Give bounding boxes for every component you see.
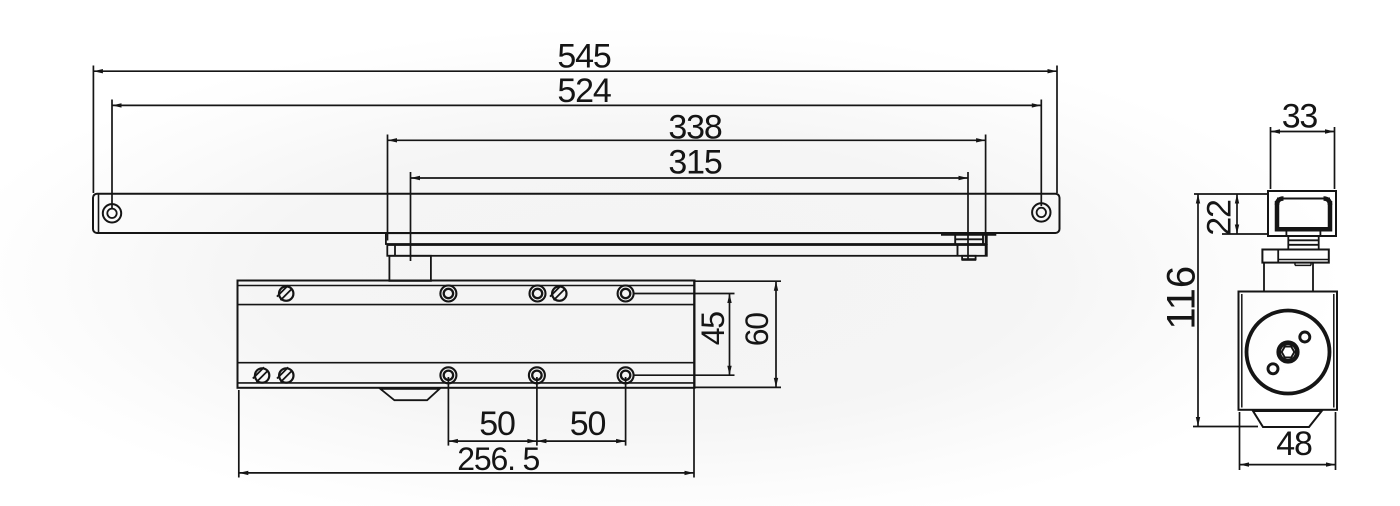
svg-text:60: 60 bbox=[739, 313, 775, 347]
svg-text:50: 50 bbox=[570, 405, 606, 443]
svg-text:256. 5: 256. 5 bbox=[457, 441, 539, 477]
svg-text:116: 116 bbox=[1160, 266, 1204, 330]
svg-text:524: 524 bbox=[557, 72, 610, 110]
svg-text:338: 338 bbox=[668, 108, 721, 146]
svg-text:45: 45 bbox=[695, 312, 731, 346]
svg-text:33: 33 bbox=[1282, 98, 1318, 136]
svg-text:50: 50 bbox=[479, 405, 515, 443]
svg-text:48: 48 bbox=[1276, 425, 1312, 463]
svg-text:315: 315 bbox=[668, 143, 721, 181]
svg-text:545: 545 bbox=[557, 38, 610, 76]
svg-text:22: 22 bbox=[1201, 200, 1239, 236]
